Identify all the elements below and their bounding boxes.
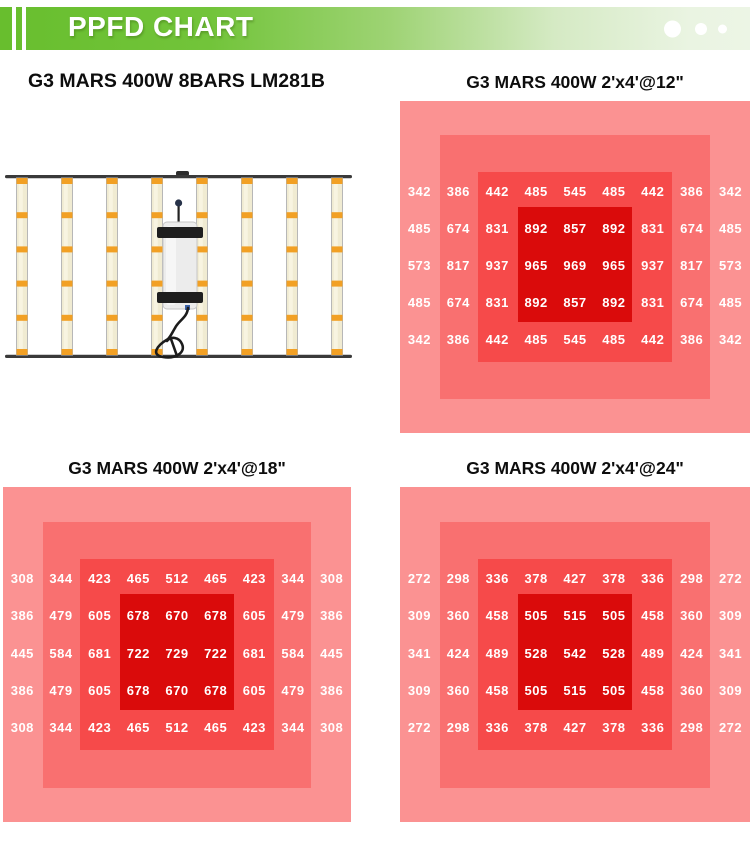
- ppfd-value-grid: 3083444234655124654233443083864796056786…: [3, 560, 351, 747]
- ppfd-value: 445: [3, 634, 42, 671]
- ppfd-value: 386: [3, 672, 42, 709]
- ppfd-value: 378: [594, 560, 633, 597]
- ppfd-value: 458: [633, 597, 672, 634]
- ppfd-value: 670: [158, 597, 197, 634]
- ppfd-value: 678: [119, 672, 158, 709]
- ppfd-value: 344: [42, 709, 81, 746]
- ppfd-value: 272: [711, 709, 750, 746]
- ppfd-value: 674: [439, 284, 478, 321]
- ppfd-value: 386: [439, 321, 478, 358]
- ppfd-value: 937: [478, 247, 517, 284]
- ppfd-value: 857: [556, 210, 595, 247]
- ppfd-value: 681: [80, 634, 119, 671]
- dot-icon: [718, 24, 727, 33]
- ppfd-value: 386: [3, 597, 42, 634]
- ppfd-value: 386: [672, 173, 711, 210]
- ppfd-value: 423: [80, 709, 119, 746]
- ppfd-value: 817: [672, 247, 711, 284]
- ppfd-value: 458: [478, 597, 517, 634]
- ppfd-value: 573: [711, 247, 750, 284]
- ppfd-value: 342: [400, 173, 439, 210]
- ppfd-value: 528: [517, 634, 556, 671]
- ppfd-value: 427: [556, 709, 595, 746]
- ppfd-value: 479: [274, 672, 313, 709]
- ppfd-value: 605: [80, 672, 119, 709]
- ppfd-value: 308: [3, 709, 42, 746]
- ppfd-value: 272: [711, 560, 750, 597]
- top-rail: [5, 175, 352, 178]
- ppfd-value: 442: [478, 321, 517, 358]
- ppfd-value: 445: [312, 634, 351, 671]
- ppfd-value: 505: [517, 672, 556, 709]
- banner-stripe-gap: [22, 7, 26, 50]
- ppfd-value: 831: [633, 284, 672, 321]
- ppfd-value: 892: [594, 210, 633, 247]
- ppfd-value: 542: [556, 634, 595, 671]
- ppfd-value: 424: [439, 634, 478, 671]
- fixture-panel-title: G3 MARS 400W 8BARS LM281B: [28, 70, 325, 93]
- ppfd-value: 674: [439, 210, 478, 247]
- ppfd-value: 831: [633, 210, 672, 247]
- ppfd-value: 465: [119, 709, 158, 746]
- ppfd-value: 442: [633, 321, 672, 358]
- heatmap-title-12in: G3 MARS 400W 2'x4'@12": [400, 72, 750, 93]
- ppfd-value: 298: [439, 560, 478, 597]
- ppfd-value: 678: [196, 597, 235, 634]
- ppfd-value: 545: [556, 173, 595, 210]
- ppfd-value: 512: [158, 709, 197, 746]
- ppfd-value: 465: [119, 560, 158, 597]
- ppfd-value: 442: [478, 173, 517, 210]
- ppfd-value: 584: [274, 634, 313, 671]
- ppfd-value: 670: [158, 672, 197, 709]
- ppfd-value: 272: [400, 709, 439, 746]
- ppfd-value: 485: [594, 173, 633, 210]
- ppfd-value: 485: [400, 284, 439, 321]
- ppfd-value: 489: [633, 634, 672, 671]
- antenna: [178, 205, 180, 223]
- ppfd-value: 515: [556, 672, 595, 709]
- ppfd-value-grid: 2722983363784273783362982723093604585055…: [400, 560, 750, 747]
- ppfd-value: 937: [633, 247, 672, 284]
- ppfd-value: 573: [400, 247, 439, 284]
- ppfd-value: 344: [274, 709, 313, 746]
- heatmap-12in: 3423864424855454854423863424856748318928…: [400, 101, 750, 433]
- ppfd-value: 479: [42, 597, 81, 634]
- ppfd-value: 378: [517, 560, 556, 597]
- ppfd-value: 272: [400, 560, 439, 597]
- ppfd-value: 605: [235, 597, 274, 634]
- ppfd-value: 309: [400, 672, 439, 709]
- ppfd-value: 505: [594, 597, 633, 634]
- ppfd-value: 545: [556, 321, 595, 358]
- ppfd-value: 309: [711, 597, 750, 634]
- heatmap-title-18in: G3 MARS 400W 2'x4'@18": [3, 458, 351, 479]
- ppfd-value: 485: [711, 210, 750, 247]
- ppfd-value: 341: [400, 634, 439, 671]
- ppfd-value: 342: [711, 321, 750, 358]
- ppfd-value: 722: [119, 634, 158, 671]
- heatmap-18in: 3083444234655124654233443083864796056786…: [3, 487, 351, 822]
- ppfd-value: 678: [119, 597, 158, 634]
- ppfd-value: 605: [235, 672, 274, 709]
- ppfd-value: 308: [3, 560, 42, 597]
- ppfd-value: 831: [478, 210, 517, 247]
- ppfd-value: 722: [196, 634, 235, 671]
- ppfd-value: 298: [672, 709, 711, 746]
- ppfd-value: 965: [517, 247, 556, 284]
- ppfd-value: 309: [400, 597, 439, 634]
- ppfd-value: 386: [312, 597, 351, 634]
- ppfd-value: 681: [235, 634, 274, 671]
- ppfd-value: 360: [672, 672, 711, 709]
- ppfd-value: 485: [594, 321, 633, 358]
- ppfd-value: 360: [439, 597, 478, 634]
- ppfd-value: 458: [478, 672, 517, 709]
- ppfd-value: 378: [517, 709, 556, 746]
- ppfd-value: 336: [478, 709, 517, 746]
- ppfd-value: 489: [478, 634, 517, 671]
- ppfd-value: 605: [80, 597, 119, 634]
- ppfd-value: 423: [235, 709, 274, 746]
- ppfd-value: 831: [478, 284, 517, 321]
- ppfd-value: 479: [274, 597, 313, 634]
- ppfd-value: 479: [42, 672, 81, 709]
- ppfd-value: 360: [672, 597, 711, 634]
- ppfd-value: 427: [556, 560, 595, 597]
- ppfd-value: 969: [556, 247, 595, 284]
- ppfd-value: 309: [711, 672, 750, 709]
- ppfd-value: 336: [478, 560, 517, 597]
- ppfd-value: 308: [312, 560, 351, 597]
- ppfd-value: 485: [711, 284, 750, 321]
- ppfd-value: 336: [633, 560, 672, 597]
- ppfd-chart-page: PPFD CHART G3 MARS 400W 8BARS LM281B: [0, 0, 750, 852]
- ppfd-value: 465: [196, 560, 235, 597]
- heatmap-title-24in: G3 MARS 400W 2'x4'@24": [400, 458, 750, 479]
- ppfd-value: 965: [594, 247, 633, 284]
- ppfd-value: 342: [711, 173, 750, 210]
- ppfd-value: 729: [158, 634, 197, 671]
- dot-icon: [695, 23, 707, 35]
- ppfd-value: 857: [556, 284, 595, 321]
- ppfd-value: 424: [672, 634, 711, 671]
- mount-strap: [157, 227, 203, 238]
- grow-light-fixture-diagram: [5, 170, 352, 362]
- ppfd-value: 458: [633, 672, 672, 709]
- ppfd-value: 336: [633, 709, 672, 746]
- ppfd-value: 344: [274, 560, 313, 597]
- ppfd-value: 344: [42, 560, 81, 597]
- ppfd-value: 386: [312, 672, 351, 709]
- ppfd-value: 674: [672, 210, 711, 247]
- ppfd-value-grid: 3423864424855454854423863424856748318928…: [400, 173, 750, 358]
- heatmap-24in: 2722983363784273783362982723093604585055…: [400, 487, 750, 822]
- ppfd-value: 892: [517, 210, 556, 247]
- ppfd-value: 817: [439, 247, 478, 284]
- ppfd-value: 515: [556, 597, 595, 634]
- ppfd-value: 505: [517, 597, 556, 634]
- ppfd-value: 485: [400, 210, 439, 247]
- ppfd-value: 308: [312, 709, 351, 746]
- antenna-cap: [175, 199, 182, 206]
- ppfd-value: 892: [517, 284, 556, 321]
- ppfd-value: 674: [672, 284, 711, 321]
- ppfd-value: 505: [594, 672, 633, 709]
- ppfd-value: 485: [517, 173, 556, 210]
- ppfd-value: 485: [517, 321, 556, 358]
- dot-icon: [664, 20, 681, 37]
- ppfd-value: 298: [672, 560, 711, 597]
- mount-strap: [157, 292, 203, 303]
- ppfd-value: 360: [439, 672, 478, 709]
- ppfd-value: 678: [196, 672, 235, 709]
- ppfd-value: 442: [633, 173, 672, 210]
- ppfd-value: 298: [439, 709, 478, 746]
- page-title: PPFD CHART: [68, 11, 253, 43]
- banner-stripe-gap: [12, 7, 16, 50]
- ppfd-value: 423: [80, 560, 119, 597]
- ppfd-value: 386: [439, 173, 478, 210]
- header-banner: PPFD CHART: [0, 7, 750, 50]
- ppfd-value: 892: [594, 284, 633, 321]
- ppfd-value: 465: [196, 709, 235, 746]
- ppfd-value: 342: [400, 321, 439, 358]
- ppfd-value: 386: [672, 321, 711, 358]
- ppfd-value: 341: [711, 634, 750, 671]
- ppfd-value: 584: [42, 634, 81, 671]
- ppfd-value: 512: [158, 560, 197, 597]
- ppfd-value: 528: [594, 634, 633, 671]
- ppfd-value: 423: [235, 560, 274, 597]
- ppfd-value: 378: [594, 709, 633, 746]
